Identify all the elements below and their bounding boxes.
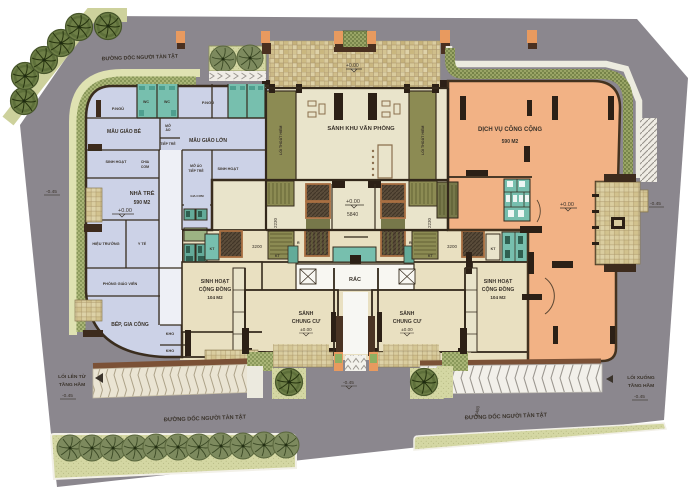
svg-text:±0.00: ±0.00 — [401, 327, 413, 332]
svg-text:TIẾP TRẺ: TIẾP TRẺ — [188, 168, 204, 173]
svg-text:CỘNG ĐỒNG: CỘNG ĐỒNG — [482, 285, 515, 293]
svg-text:KT: KT — [210, 247, 216, 251]
svg-text:3200: 3200 — [447, 244, 458, 249]
svg-text:MẪU GIÁO LỚN: MẪU GIÁO LỚN — [189, 136, 227, 144]
svg-text:+0.00: +0.00 — [346, 63, 359, 69]
svg-text:-0.45: -0.45 — [343, 380, 354, 386]
svg-text:SẢNH: SẢNH — [400, 310, 415, 317]
svg-text:3200: 3200 — [252, 244, 263, 249]
svg-text:+0.00: +0.00 — [118, 208, 132, 214]
svg-text:LỐI XUỐNG: LỐI XUỐNG — [627, 374, 655, 381]
svg-text:CƠM: CƠM — [141, 165, 149, 169]
svg-text:+0.00: +0.00 — [560, 202, 574, 208]
svg-text:GIA CƠM: GIA CƠM — [190, 194, 204, 198]
svg-text:ÁO: ÁO — [165, 127, 170, 132]
svg-text:SINH HOẠT: SINH HOẠT — [106, 160, 128, 164]
svg-text:TẦNG HẦM: TẦNG HẦM — [628, 382, 654, 389]
svg-text:LỐI THOÁT HIỂM: LỐI THOÁT HIỂM — [420, 126, 425, 155]
svg-text:P.NGỦ: P.NGỦ — [112, 106, 124, 111]
svg-text:104 M2: 104 M2 — [490, 295, 506, 300]
svg-text:TẦNG HẦM: TẦNG HẦM — [59, 381, 85, 388]
svg-text:-0.45: -0.45 — [62, 393, 73, 399]
svg-text:CHUNG CƯ: CHUNG CƯ — [292, 319, 321, 325]
svg-text:DỊCH VỤ CÔNG CỘNG: DỊCH VỤ CÔNG CỘNG — [478, 125, 542, 133]
svg-text:WC: WC — [143, 100, 149, 104]
svg-text:PHÒNG GIÁO VIÊN: PHÒNG GIÁO VIÊN — [103, 281, 138, 286]
svg-text:LỐI THOÁT HIỂM: LỐI THOÁT HIỂM — [278, 126, 283, 155]
svg-text:KHO: KHO — [166, 349, 174, 353]
svg-text:104 M2: 104 M2 — [207, 295, 223, 300]
svg-text:Y TẾ: Y TẾ — [138, 241, 147, 246]
svg-text:CỘNG ĐỒNG: CỘNG ĐỒNG — [199, 285, 232, 293]
svg-text:NHÀ TRẺ: NHÀ TRẺ — [130, 190, 155, 197]
svg-text:SINH HOẠT: SINH HOẠT — [484, 279, 513, 285]
svg-text:SẢNH KHU VĂN PHÒNG: SẢNH KHU VĂN PHÒNG — [327, 124, 395, 132]
svg-text:SẢNH: SẢNH — [299, 310, 314, 317]
svg-text:HIỆU TRƯỞNG: HIỆU TRƯỞNG — [92, 241, 119, 246]
svg-text:±0.00: ±0.00 — [300, 327, 312, 332]
svg-text:KHO: KHO — [166, 332, 174, 336]
svg-text:KT: KT — [491, 247, 497, 251]
svg-text:590 M2: 590 M2 — [134, 200, 151, 206]
svg-text:5840: 5840 — [347, 212, 358, 218]
svg-text:CHUNG CƯ: CHUNG CƯ — [393, 319, 422, 325]
svg-text:590 M2: 590 M2 — [502, 139, 519, 145]
svg-text:2230: 2230 — [273, 217, 278, 228]
svg-text:BẾP, GIA CÔNG: BẾP, GIA CÔNG — [111, 320, 149, 328]
svg-text:-0.45: -0.45 — [634, 394, 645, 400]
svg-text:-0.45: -0.45 — [650, 201, 661, 207]
svg-text:TIẾP TRẺ: TIẾP TRẺ — [160, 141, 176, 146]
svg-text:MẪU GIÁO BÉ: MẪU GIÁO BÉ — [107, 127, 142, 135]
svg-text:MỞ ÁO: MỞ ÁO — [190, 163, 202, 168]
svg-text:SINH HOẠT: SINH HOẠT — [218, 167, 240, 171]
svg-text:2230: 2230 — [427, 217, 432, 228]
svg-text:WC: WC — [164, 100, 170, 104]
svg-text:-0.45: -0.45 — [46, 189, 57, 195]
svg-text:+0.00: +0.00 — [346, 199, 360, 205]
svg-text:R: R — [297, 241, 300, 245]
svg-text:SINH HOẠT: SINH HOẠT — [201, 279, 230, 285]
svg-text:RÁC: RÁC — [349, 276, 361, 283]
svg-text:CHIA: CHIA — [141, 160, 150, 164]
